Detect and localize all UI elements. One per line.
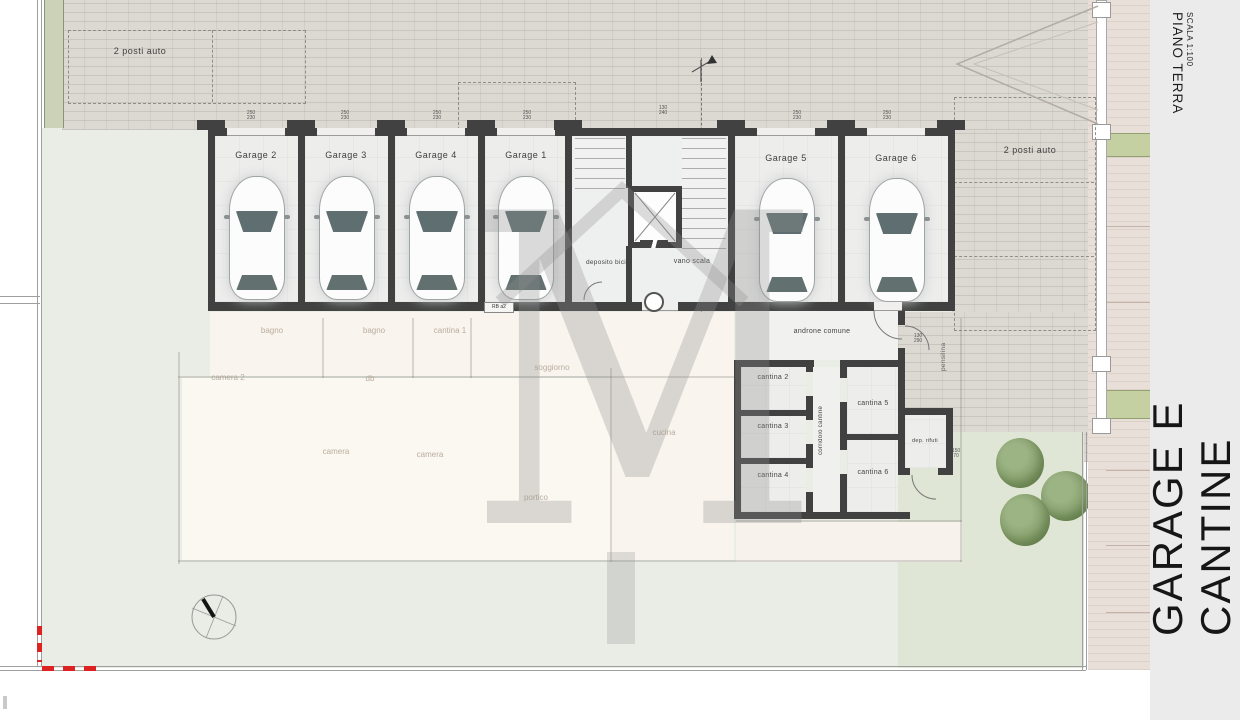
corridoio-label: corridoio cantine [818,392,828,468]
cantina-label: cantina 5 [848,400,898,408]
ghost-rooms [210,312,734,376]
wall [938,468,953,475]
road-edge [0,296,40,297]
sidebar: PIANO TERRA SCALA 1:100 GARAGE E CANTINE [1150,0,1240,720]
door-dim: 130240 [655,106,671,116]
wall [838,128,845,310]
wall [734,360,814,367]
garage-door [317,128,375,136]
sheet-title: GARAGE E CANTINE [1164,212,1220,636]
tree-icon [996,438,1044,488]
car-icon [319,176,375,300]
fence-southeast [1086,432,1087,670]
wall [946,415,953,475]
sheet-tick [3,696,7,709]
tree-icon [1000,494,1050,546]
wall [840,360,847,378]
fence-post [1092,356,1111,372]
wall [734,458,813,464]
cantina-label: cantina 2 [741,374,805,382]
wall [388,128,395,310]
boundary-south [0,666,1086,667]
rb-label: RB a2 [484,302,514,313]
door-dim: 250230 [879,111,895,121]
wall [840,474,847,512]
cantina-label: cantina 6 [846,469,900,477]
elevator-door [640,240,668,248]
wall [898,360,905,475]
wall [728,128,735,310]
door-dim: 15070 [948,449,964,459]
wall [208,128,215,310]
ghost-room-label: cantina 1 [426,327,474,335]
road-edge [0,303,40,304]
door-dim: 250230 [789,111,805,121]
wall [626,136,632,188]
fence-post [1092,418,1111,434]
ghost-room-label: soggiorno [527,364,577,372]
wall [298,128,305,310]
wall [806,360,813,372]
parking-label-left: 2 posti auto [100,46,180,56]
ghost-wall [960,318,962,562]
pillar [827,120,855,130]
wall [626,246,632,304]
ghost-wall [322,318,324,378]
ghost-wall [178,376,734,378]
door-dim: 250230 [337,111,353,121]
car-icon [409,176,465,300]
pillar [377,120,405,130]
wall [948,128,955,310]
ghost-rooms [612,370,734,560]
garage-door [757,128,815,136]
ghost-wall [412,318,414,378]
wall [806,492,813,512]
cantina-label: cantina 3 [741,423,805,431]
ghost-room-label: cucina [644,429,684,437]
ghost-portico [736,522,962,562]
ghost-room-label: camera 2 [205,374,251,382]
red-boundary-marker [37,626,42,662]
parking-stall-divider [954,256,1094,257]
wall [806,444,813,468]
ghost-wall [610,368,612,562]
ghost-wall [736,520,962,522]
pillar [554,120,582,130]
androne-entry [874,302,902,311]
elevator-cab [634,192,676,242]
garage-door [497,128,555,136]
wall [565,128,572,310]
stair-flight [682,138,726,254]
parking-stall-divider [954,182,1094,183]
ghost-room-label: portico [514,494,558,502]
ghost-wall [178,560,962,562]
wall [898,408,953,415]
plan-scale: SCALA 1:100 [1185,12,1194,114]
pillar [937,120,965,130]
wall [208,302,955,311]
wall [847,434,905,440]
boundary-south [0,670,1086,671]
pensilina-label: pensilina [940,336,949,378]
pillar [287,120,315,130]
garage-door [407,128,465,136]
car-icon [229,176,285,300]
red-boundary-marker [42,666,104,671]
garage-door [867,128,925,136]
wall [734,360,741,519]
boundary-west [41,0,42,667]
car-icon [498,176,554,300]
fence-post [1092,2,1111,18]
stair-flight [575,138,625,190]
parking-stall-outline [954,97,1096,331]
green-band [1106,133,1150,157]
wall [898,311,905,325]
door-dim: 250230 [243,111,259,121]
wall [806,396,813,420]
garage-label: Garage 1 [486,150,566,160]
wall [478,128,485,310]
ghost-room-label: db [360,375,380,383]
hedge [44,0,64,128]
floor-plan-sheet: 2 posti auto 2 posti auto bagno bagno ca… [0,0,1240,720]
rifiuti-label: dep. rifuti [910,438,940,444]
parking-stall-outline [68,30,306,104]
parking-stall-divider [212,30,213,102]
door-dim: 250230 [429,111,445,121]
androne-label: androne comune [792,328,852,336]
wall [734,512,910,519]
parking-label-right: 2 posti auto [990,145,1070,155]
vano-scala-label: vano scala [660,258,724,266]
core-manhole-icon [644,292,664,312]
car-icon [759,178,815,302]
wall [734,410,813,416]
deposito-bici-label: deposito bici [584,259,628,267]
ghost-room-label: camera [408,451,452,459]
garage-label: Garage 4 [396,150,476,160]
garage-label: Garage 6 [856,153,936,163]
plan-name: PIANO TERRA [1170,12,1185,114]
plan-header: PIANO TERRA SCALA 1:100 [1170,12,1194,114]
androne-floor [735,311,898,360]
ghost-wall [178,352,180,564]
door-dim: 130290 [910,334,926,344]
cantina-label: cantina 4 [741,472,805,480]
ghost-room-label: bagno [252,327,292,335]
door-dim: 250230 [519,111,535,121]
wall [840,360,900,367]
garage-label: Garage 5 [746,153,826,163]
garage-door [227,128,285,136]
garage-label: Garage 2 [216,150,296,160]
car-icon [869,178,925,302]
pillar [717,120,745,130]
wall [840,402,847,450]
pillar [197,120,225,130]
ghost-room-label: camera [314,448,358,456]
pillar [467,120,495,130]
ghost-room-label: bagno [354,327,394,335]
boundary-west [37,0,38,667]
garage-label: Garage 3 [306,150,386,160]
fence-southeast [1082,432,1083,670]
